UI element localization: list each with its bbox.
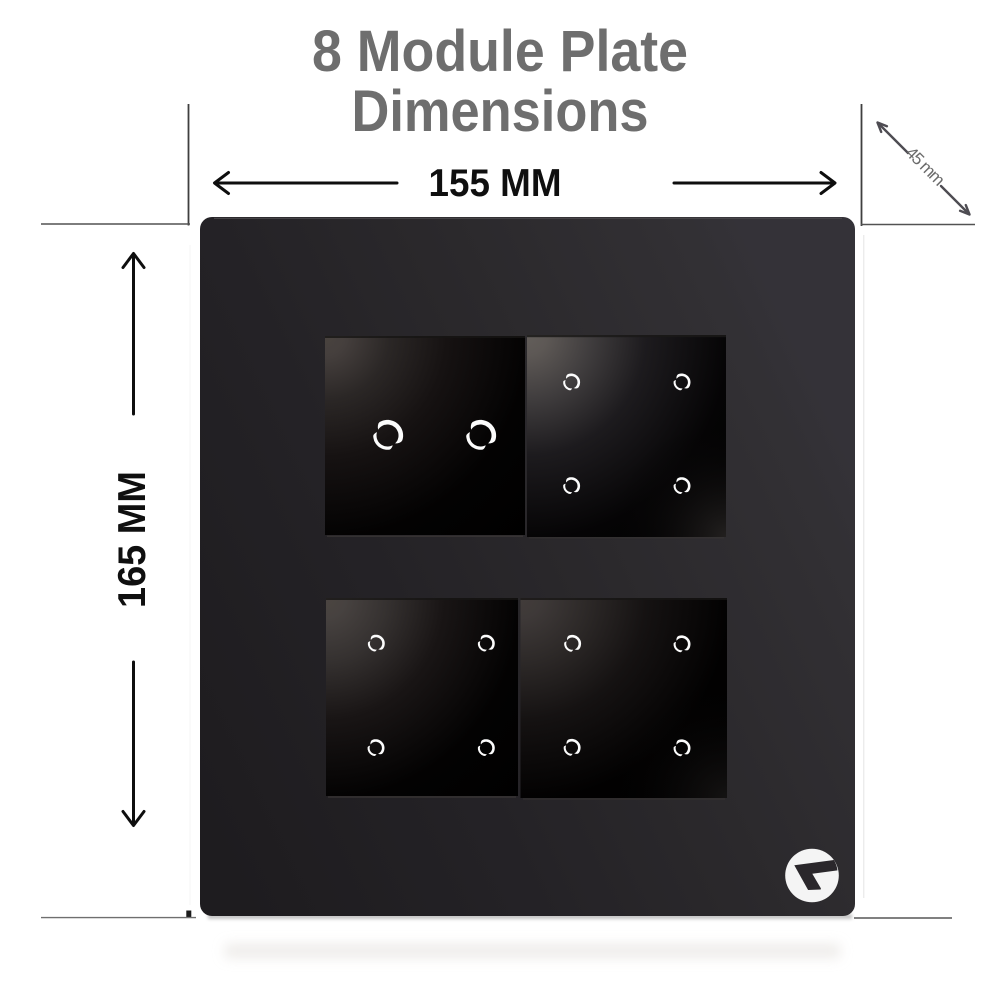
svg-text:45 mm: 45 mm xyxy=(902,143,949,190)
svg-text:8 Module Plate: 8 Module Plate xyxy=(312,19,688,84)
svg-text:Dimensions: Dimensions xyxy=(352,79,649,144)
svg-text:155 MM: 155 MM xyxy=(429,162,562,205)
svg-text:165 MM: 165 MM xyxy=(111,471,154,608)
